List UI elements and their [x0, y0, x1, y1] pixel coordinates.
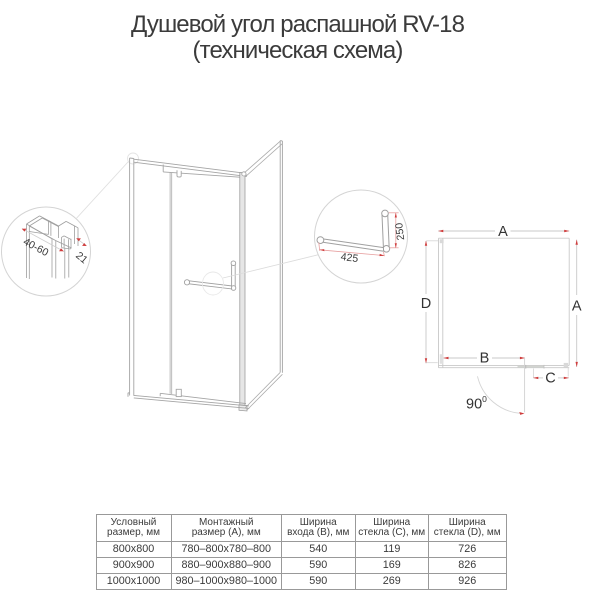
- svg-text:425: 425: [340, 251, 359, 265]
- svg-text:A: A: [498, 224, 508, 240]
- svg-text:A: A: [572, 299, 582, 315]
- svg-text:C: C: [545, 371, 555, 387]
- svg-text:900: 900: [466, 394, 487, 413]
- svg-text:250: 250: [393, 222, 407, 241]
- svg-text:B: B: [480, 351, 490, 367]
- svg-text:D: D: [421, 296, 431, 312]
